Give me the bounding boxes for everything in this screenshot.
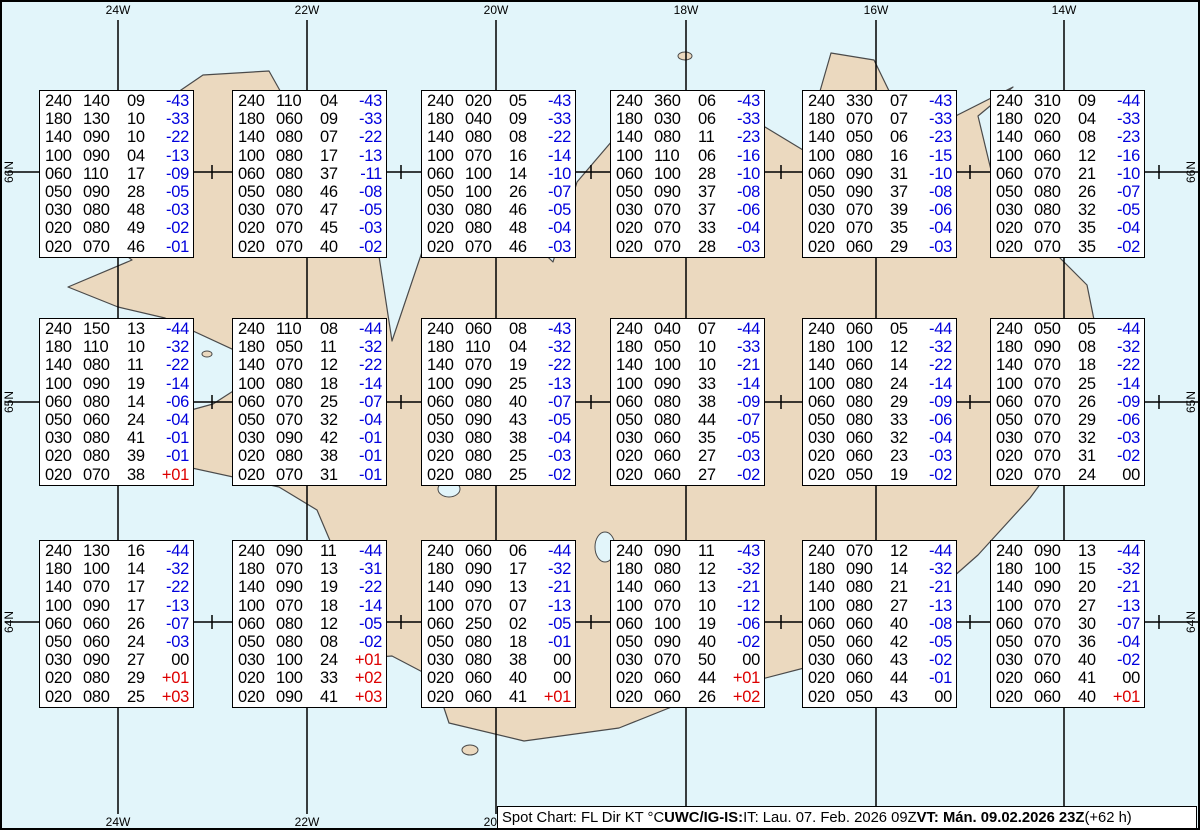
- temperature-value: -03: [728, 447, 760, 465]
- fl-value: 020: [238, 447, 276, 465]
- wind-speed-value: 37: [320, 165, 350, 183]
- flight-level-row: 18013010-33: [45, 110, 189, 128]
- fl-value: 060: [808, 615, 846, 633]
- wind-dir-value: 070: [654, 651, 698, 669]
- flight-level-row: 24006006-44: [427, 542, 571, 560]
- temperature-value: -05: [539, 615, 571, 633]
- fl-value: 180: [996, 338, 1034, 356]
- wind-dir-value: 080: [654, 560, 698, 578]
- wind-speed-value: 40: [890, 615, 920, 633]
- fl-value: 020: [616, 219, 654, 237]
- longitude-label-top: 20W: [474, 3, 518, 17]
- longitude-label-top: 14W: [1042, 3, 1086, 17]
- fl-value: 100: [238, 375, 276, 393]
- flight-level-row: 10008017-13: [238, 147, 382, 165]
- temperature-value: -21: [920, 578, 952, 596]
- wind-dir-value: 050: [846, 466, 890, 484]
- temperature-value: -05: [350, 201, 382, 219]
- temperature-value: -01: [350, 447, 382, 465]
- flight-level-row: 05010026-07: [427, 183, 571, 201]
- wind-dir-value: 070: [276, 560, 320, 578]
- flight-level-row: 02009041+03: [238, 688, 382, 706]
- flight-level-row: 24036006-43: [616, 92, 760, 110]
- wind-speed-value: 18: [320, 375, 350, 393]
- wind-speed-value: 25: [509, 447, 539, 465]
- chart-title: Spot Chart: FL Dir KT °C: [502, 810, 664, 826]
- fl-value: 240: [616, 542, 654, 560]
- wind-dir-value: 090: [846, 183, 890, 201]
- wind-speed-value: 04: [320, 92, 350, 110]
- flight-level-row: 05008046-08: [238, 183, 382, 201]
- wind-dir-value: 060: [1034, 147, 1078, 165]
- wind-speed-value: 06: [698, 110, 728, 128]
- temperature-value: -44: [157, 542, 189, 560]
- wind-dir-value: 060: [1034, 688, 1078, 706]
- flight-level-row: 06007021-10: [996, 165, 1140, 183]
- fl-value: 030: [238, 429, 276, 447]
- temperature-value: -08: [728, 183, 760, 201]
- fl-value: 240: [808, 542, 846, 560]
- wind-dir-value: 150: [83, 320, 127, 338]
- flight-level-row: 02007031-02: [996, 447, 1140, 465]
- fl-value: 060: [808, 165, 846, 183]
- wind-dir-value: 090: [83, 147, 127, 165]
- wind-dir-value: 090: [465, 375, 509, 393]
- fl-value: 180: [45, 110, 83, 128]
- fl-value: 050: [616, 633, 654, 651]
- wind-dir-value: 080: [654, 411, 698, 429]
- wind-dir-value: 090: [846, 560, 890, 578]
- wind-dir-value: 060: [654, 669, 698, 687]
- wind-dir-value: 070: [846, 110, 890, 128]
- wind-speed-value: 31: [890, 165, 920, 183]
- wind-speed-value: 37: [698, 201, 728, 219]
- wind-dir-value: 090: [1034, 578, 1078, 596]
- wind-speed-value: 18: [320, 597, 350, 615]
- wind-dir-value: 070: [1034, 615, 1078, 633]
- wind-dir-value: 060: [83, 615, 127, 633]
- wind-dir-value: 060: [654, 578, 698, 596]
- temperature-value: -22: [1108, 356, 1140, 374]
- fl-value: 020: [996, 219, 1034, 237]
- wind-speed-value: 08: [320, 320, 350, 338]
- temperature-value: -04: [1108, 219, 1140, 237]
- wind-speed-value: 17: [509, 560, 539, 578]
- latitude-label-right: 64N: [1184, 607, 1198, 637]
- flight-level-row: 05006024-04: [45, 411, 189, 429]
- temperature-value: -22: [350, 128, 382, 146]
- wind-dir-value: 090: [1034, 338, 1078, 356]
- island: [462, 745, 478, 755]
- wind-speed-value: 37: [698, 183, 728, 201]
- fl-value: 140: [996, 356, 1034, 374]
- temperature-value: -02: [350, 238, 382, 256]
- spot-data-box: 24031009-4418002004-3314006008-231000601…: [990, 90, 1145, 258]
- temperature-value: -44: [350, 542, 382, 560]
- fl-value: 140: [45, 128, 83, 146]
- wind-dir-value: 080: [276, 183, 320, 201]
- temperature-value: +01: [157, 669, 189, 687]
- flight-level-row: 02006029-03: [808, 238, 952, 256]
- flight-level-row: 10011006-16: [616, 147, 760, 165]
- temperature-value: -02: [1108, 651, 1140, 669]
- wind-dir-value: 060: [654, 447, 698, 465]
- flight-level-row: 06010028-10: [616, 165, 760, 183]
- flight-level-row: 03008041-01: [45, 429, 189, 447]
- wind-speed-value: 41: [320, 688, 350, 706]
- spot-data-box: 24007012-4418009014-3214008021-211000802…: [802, 540, 957, 708]
- fl-value: 100: [616, 147, 654, 165]
- wind-dir-value: 090: [465, 411, 509, 429]
- wind-dir-value: 070: [1034, 633, 1078, 651]
- fl-value: 180: [427, 338, 465, 356]
- fl-value: 240: [616, 92, 654, 110]
- wind-dir-value: 090: [846, 165, 890, 183]
- temperature-value: 00: [539, 669, 571, 687]
- wind-speed-value: 33: [320, 669, 350, 687]
- wind-dir-value: 060: [465, 320, 509, 338]
- spot-data-box: 24002005-4318004009-3314008008-221000701…: [421, 90, 576, 258]
- wind-dir-value: 090: [83, 183, 127, 201]
- fl-value: 050: [45, 411, 83, 429]
- flight-level-row: 10007016-14: [427, 147, 571, 165]
- wind-speed-value: 16: [890, 147, 920, 165]
- wind-speed-value: 36: [1078, 633, 1108, 651]
- flight-level-row: 10008027-13: [808, 597, 952, 615]
- fl-value: 100: [996, 147, 1034, 165]
- flight-level-row: 05008044-07: [616, 411, 760, 429]
- flight-level-row: 06008014-06: [45, 393, 189, 411]
- fl-value: 030: [238, 201, 276, 219]
- wind-speed-value: 16: [127, 542, 157, 560]
- flight-level-row: 10007007-13: [427, 597, 571, 615]
- fl-value: 140: [616, 578, 654, 596]
- flight-level-row: 14007019-22: [427, 356, 571, 374]
- wind-speed-value: 40: [698, 633, 728, 651]
- temperature-value: -22: [350, 356, 382, 374]
- fl-value: 020: [616, 466, 654, 484]
- wind-speed-value: 05: [890, 320, 920, 338]
- wind-speed-value: 47: [320, 201, 350, 219]
- spot-data-box: 24006008-4318011004-3214007019-221000902…: [421, 318, 576, 486]
- wind-speed-value: 09: [127, 92, 157, 110]
- flight-level-row: 05008026-07: [996, 183, 1140, 201]
- wind-speed-value: 44: [890, 669, 920, 687]
- flight-level-row: 02007040-02: [238, 238, 382, 256]
- wind-dir-value: 080: [276, 633, 320, 651]
- fl-value: 030: [808, 429, 846, 447]
- fl-value: 020: [996, 688, 1034, 706]
- temperature-value: -06: [728, 615, 760, 633]
- temperature-value: -32: [539, 338, 571, 356]
- wind-dir-value: 070: [1034, 219, 1078, 237]
- wind-speed-value: 32: [1078, 429, 1108, 447]
- flight-level-row: 10007010-12: [616, 597, 760, 615]
- flight-level-row: 03010024+01: [238, 651, 382, 669]
- temperature-value: +03: [157, 688, 189, 706]
- fl-value: 050: [427, 633, 465, 651]
- fl-value: 030: [616, 651, 654, 669]
- temperature-value: +01: [539, 688, 571, 706]
- wind-speed-value: 28: [127, 183, 157, 201]
- flight-level-row: 24004007-44: [616, 320, 760, 338]
- wind-dir-value: 080: [465, 633, 509, 651]
- temperature-value: -14: [920, 375, 952, 393]
- flight-level-row: 02006026+02: [616, 688, 760, 706]
- flight-level-row: 03007040-02: [996, 651, 1140, 669]
- temperature-value: -13: [539, 597, 571, 615]
- fl-value: 020: [238, 688, 276, 706]
- wind-dir-value: 070: [1034, 375, 1078, 393]
- flight-level-row: 06007026-09: [996, 393, 1140, 411]
- wind-speed-value: 48: [509, 219, 539, 237]
- flight-level-row: 10009004-13: [45, 147, 189, 165]
- wind-dir-value: 310: [1034, 92, 1078, 110]
- flight-level-row: 02008038-01: [238, 447, 382, 465]
- flight-level-row: 05008008-02: [238, 633, 382, 651]
- temperature-value: -23: [920, 128, 952, 146]
- flight-level-row: 24011008-44: [238, 320, 382, 338]
- temperature-value: +03: [350, 688, 382, 706]
- flight-level-row: 14006013-21: [616, 578, 760, 596]
- fl-value: 050: [996, 411, 1034, 429]
- wind-dir-value: 060: [83, 633, 127, 651]
- flight-level-row: 02006044-01: [808, 669, 952, 687]
- temperature-value: -07: [157, 615, 189, 633]
- wind-dir-value: 080: [465, 128, 509, 146]
- wind-speed-value: 20: [1078, 578, 1108, 596]
- temperature-value: -05: [157, 183, 189, 201]
- wind-dir-value: 060: [276, 110, 320, 128]
- wind-dir-value: 100: [654, 615, 698, 633]
- spot-chart-map: Spot Chart: FL Dir KT °C UWC/IG-IS: IT: …: [0, 0, 1200, 830]
- fl-value: 240: [238, 542, 276, 560]
- temperature-value: -04: [539, 429, 571, 447]
- temperature-value: -09: [728, 393, 760, 411]
- wind-dir-value: 050: [654, 338, 698, 356]
- wind-speed-value: 21: [890, 578, 920, 596]
- temperature-value: -09: [1108, 393, 1140, 411]
- wind-speed-value: 06: [698, 147, 728, 165]
- longitude-label-bottom: 22W: [285, 815, 329, 829]
- temperature-value: -33: [350, 110, 382, 128]
- flight-level-row: 06025002-05: [427, 615, 571, 633]
- fl-value: 180: [45, 560, 83, 578]
- fl-value: 020: [45, 669, 83, 687]
- flight-level-row: 02007045-03: [238, 219, 382, 237]
- wind-speed-value: 05: [1078, 320, 1108, 338]
- temperature-value: -33: [728, 338, 760, 356]
- wind-speed-value: 25: [320, 393, 350, 411]
- temperature-value: -11: [350, 165, 382, 183]
- latitude-label-right: 65N: [1184, 387, 1198, 417]
- temperature-value: -16: [728, 147, 760, 165]
- wind-speed-value: 41: [509, 688, 539, 706]
- temperature-value: -10: [1108, 165, 1140, 183]
- wind-speed-value: 28: [698, 165, 728, 183]
- flight-level-row: 03006032-04: [808, 429, 952, 447]
- flight-level-row: 02007035-04: [996, 219, 1140, 237]
- temperature-value: -07: [1108, 183, 1140, 201]
- wind-dir-value: 090: [83, 375, 127, 393]
- fl-value: 020: [238, 238, 276, 256]
- flight-level-row: 18010015-32: [996, 560, 1140, 578]
- chart-source: UWC/IG-IS:: [664, 810, 743, 826]
- temperature-value: -03: [157, 633, 189, 651]
- flight-level-row: 24011004-43: [238, 92, 382, 110]
- flight-level-row: 10007027-13: [996, 597, 1140, 615]
- temperature-value: -44: [920, 320, 952, 338]
- flight-level-row: 18009014-32: [808, 560, 952, 578]
- wind-speed-value: 17: [320, 147, 350, 165]
- wind-dir-value: 070: [654, 597, 698, 615]
- wind-speed-value: 46: [509, 238, 539, 256]
- flight-level-row: 18009017-32: [427, 560, 571, 578]
- wind-speed-value: 19: [320, 578, 350, 596]
- latitude-label-left: 65N: [2, 387, 16, 417]
- temperature-value: -03: [157, 201, 189, 219]
- temperature-value: -33: [920, 110, 952, 128]
- wind-dir-value: 070: [83, 238, 127, 256]
- wind-speed-value: 06: [890, 128, 920, 146]
- flight-level-row: 02008039-01: [45, 447, 189, 465]
- fl-value: 050: [238, 411, 276, 429]
- flight-level-row: 14008021-21: [808, 578, 952, 596]
- fl-value: 240: [427, 542, 465, 560]
- spot-data-box: 24004007-4418005010-3314010010-211000903…: [610, 318, 765, 486]
- wind-dir-value: 070: [83, 466, 127, 484]
- wind-speed-value: 23: [890, 447, 920, 465]
- wind-dir-value: 110: [83, 165, 127, 183]
- wind-dir-value: 070: [1034, 411, 1078, 429]
- wind-speed-value: 40: [1078, 688, 1108, 706]
- flight-level-row: 18009008-32: [996, 338, 1140, 356]
- spot-data-box: 24036006-4318003006-3314008011-231001100…: [610, 90, 765, 258]
- wind-dir-value: 080: [465, 447, 509, 465]
- flight-level-row: 14006008-23: [996, 128, 1140, 146]
- temperature-value: -43: [728, 92, 760, 110]
- wind-speed-value: 25: [127, 688, 157, 706]
- wind-dir-value: 050: [1034, 320, 1078, 338]
- wind-speed-value: 26: [698, 688, 728, 706]
- wind-dir-value: 080: [846, 411, 890, 429]
- temperature-value: -02: [539, 466, 571, 484]
- wind-dir-value: 080: [276, 447, 320, 465]
- temperature-value: -05: [728, 429, 760, 447]
- wind-speed-value: 30: [1078, 615, 1108, 633]
- flight-level-row: 10009019-14: [45, 375, 189, 393]
- wind-dir-value: 060: [846, 633, 890, 651]
- temperature-value: -32: [728, 560, 760, 578]
- flight-level-row: 02005019-02: [808, 466, 952, 484]
- temperature-value: -06: [157, 393, 189, 411]
- fl-value: 050: [427, 183, 465, 201]
- fl-value: 100: [616, 375, 654, 393]
- temperature-value: -07: [728, 411, 760, 429]
- fl-value: 100: [238, 147, 276, 165]
- wind-speed-value: 25: [509, 375, 539, 393]
- wind-dir-value: 080: [276, 615, 320, 633]
- temperature-value: -09: [157, 165, 189, 183]
- wind-dir-value: 060: [465, 542, 509, 560]
- wind-speed-value: 04: [509, 338, 539, 356]
- wind-dir-value: 080: [654, 128, 698, 146]
- temperature-value: -14: [728, 375, 760, 393]
- fl-value: 060: [996, 393, 1034, 411]
- flight-level-row: 05007032-04: [238, 411, 382, 429]
- wind-speed-value: 13: [127, 320, 157, 338]
- fl-value: 050: [808, 411, 846, 429]
- fl-value: 030: [238, 651, 276, 669]
- temperature-value: -01: [157, 429, 189, 447]
- valid-time: VT: Mán. 09.02.2026 23Z: [917, 810, 1085, 826]
- wind-speed-value: 27: [127, 651, 157, 669]
- wind-dir-value: 060: [846, 651, 890, 669]
- wind-dir-value: 090: [276, 429, 320, 447]
- wind-dir-value: 080: [83, 447, 127, 465]
- temperature-value: -44: [157, 320, 189, 338]
- wind-speed-value: 14: [127, 393, 157, 411]
- wind-speed-value: 32: [890, 429, 920, 447]
- temperature-value: -22: [157, 356, 189, 374]
- wind-dir-value: 080: [276, 147, 320, 165]
- temperature-value: -01: [350, 429, 382, 447]
- flight-level-row: 02007046-03: [427, 238, 571, 256]
- fl-value: 030: [996, 201, 1034, 219]
- flight-level-row: 03008032-05: [996, 201, 1140, 219]
- temperature-value: -01: [920, 669, 952, 687]
- fl-value: 060: [238, 393, 276, 411]
- fl-value: 100: [427, 597, 465, 615]
- wind-dir-value: 060: [846, 429, 890, 447]
- wind-speed-value: 14: [127, 560, 157, 578]
- wind-speed-value: 35: [1078, 238, 1108, 256]
- wind-dir-value: 070: [465, 147, 509, 165]
- temperature-value: -43: [350, 92, 382, 110]
- wind-speed-value: 17: [127, 597, 157, 615]
- fl-value: 020: [238, 669, 276, 687]
- wind-speed-value: 14: [890, 560, 920, 578]
- temperature-value: -10: [728, 165, 760, 183]
- flight-level-row: 03008048-03: [45, 201, 189, 219]
- wind-speed-value: 46: [320, 183, 350, 201]
- wind-speed-value: 32: [320, 411, 350, 429]
- fl-value: 020: [808, 219, 846, 237]
- flight-level-row: 06008029-09: [808, 393, 952, 411]
- wind-dir-value: 080: [846, 578, 890, 596]
- temperature-value: -32: [1108, 338, 1140, 356]
- fl-value: 060: [45, 615, 83, 633]
- flight-level-row: 02008029+01: [45, 669, 189, 687]
- temperature-value: -06: [920, 201, 952, 219]
- wind-dir-value: 080: [465, 393, 509, 411]
- flight-level-row: 18005011-32: [238, 338, 382, 356]
- longitude-label-top: 16W: [854, 3, 898, 17]
- flight-level-row: 02006040+01: [996, 688, 1140, 706]
- wind-speed-value: 24: [127, 633, 157, 651]
- wind-dir-value: 070: [465, 356, 509, 374]
- temperature-value: -03: [539, 447, 571, 465]
- temperature-value: 00: [920, 688, 952, 706]
- wind-speed-value: 29: [127, 669, 157, 687]
- fl-value: 100: [238, 597, 276, 615]
- fl-value: 030: [45, 651, 83, 669]
- fl-value: 180: [996, 560, 1034, 578]
- fl-value: 030: [616, 429, 654, 447]
- wind-speed-value: 42: [320, 429, 350, 447]
- fl-value: 020: [996, 466, 1034, 484]
- wind-dir-value: 070: [276, 466, 320, 484]
